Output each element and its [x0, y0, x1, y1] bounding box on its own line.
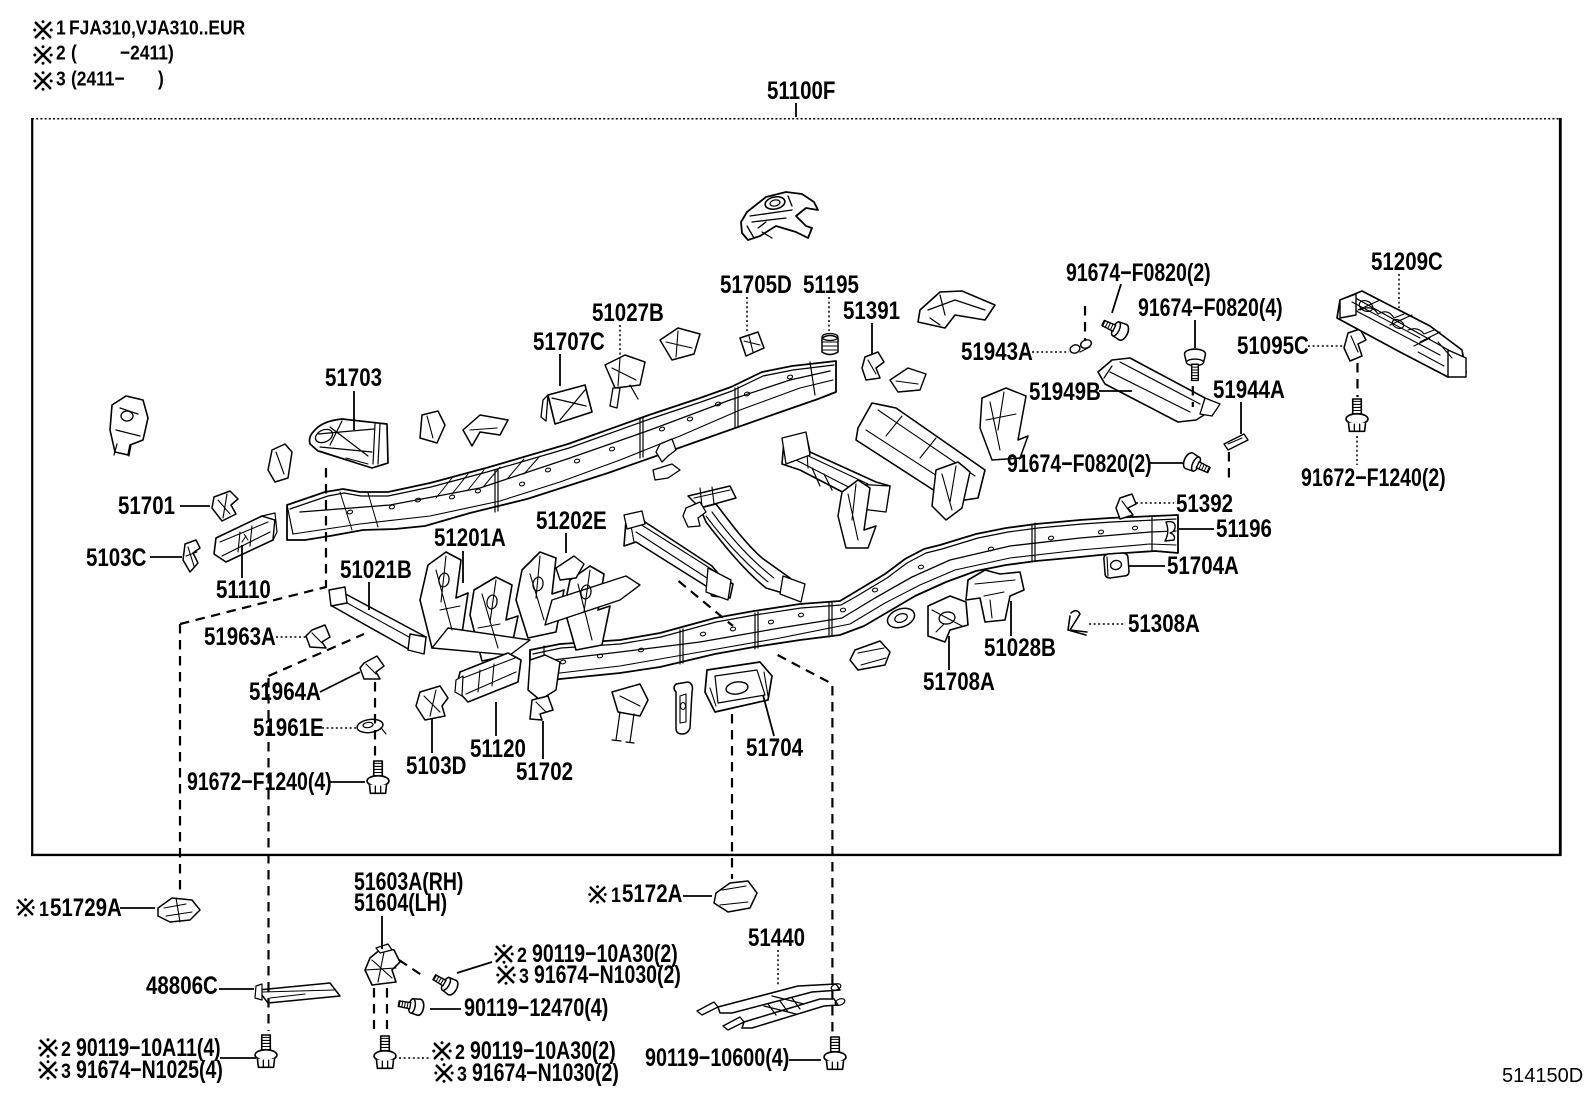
svg-text:91674−N1030(2): 91674−N1030(2) [472, 1059, 619, 1087]
svg-text:51021B: 51021B [340, 555, 412, 583]
svg-text:1: 1 [611, 884, 621, 908]
svg-text:(: ( [71, 42, 77, 65]
svg-text:51708A: 51708A [923, 667, 995, 695]
svg-text:): ) [158, 68, 164, 91]
svg-text:51729A: 51729A [50, 893, 122, 921]
svg-text:5172A: 5172A [622, 879, 682, 907]
svg-text:51110: 51110 [216, 575, 271, 603]
svg-text:1: 1 [56, 17, 66, 40]
svg-text:514150D: 514150D [1502, 1065, 1583, 1087]
svg-text:91674−F0820(2): 91674−F0820(2) [1007, 450, 1152, 478]
svg-text:51209C: 51209C [1371, 247, 1443, 275]
svg-text:48806C: 48806C [146, 971, 218, 999]
svg-text:3: 3 [61, 1060, 71, 1084]
svg-text:91672−F1240(4): 91672−F1240(4) [187, 768, 332, 796]
svg-text:51702: 51702 [516, 757, 573, 785]
svg-text:51440: 51440 [748, 923, 805, 951]
svg-text:51202E: 51202E [536, 506, 607, 534]
svg-text:51195: 51195 [803, 270, 859, 298]
svg-text:51028B: 51028B [984, 633, 1056, 661]
svg-text:51704A: 51704A [1167, 551, 1239, 579]
svg-text:51964A: 51964A [249, 677, 321, 705]
svg-text:FJA310,VJA310..EUR: FJA310,VJA310..EUR [69, 17, 245, 40]
svg-text:91674−F0820(2): 91674−F0820(2) [1066, 259, 1211, 287]
svg-text:2: 2 [455, 1041, 465, 1065]
svg-text:(2411−: (2411− [71, 68, 125, 91]
svg-text:91674−N1025(4): 91674−N1025(4) [76, 1056, 223, 1084]
svg-text:2: 2 [56, 42, 66, 65]
svg-text:51201A: 51201A [434, 523, 506, 551]
svg-text:51308A: 51308A [1128, 609, 1200, 637]
svg-text:91674−N1030(2): 91674−N1030(2) [534, 961, 681, 989]
svg-text:51963A: 51963A [204, 622, 276, 650]
svg-text:51961E: 51961E [253, 713, 324, 741]
svg-text:5103D: 5103D [406, 751, 466, 779]
svg-text:51701: 51701 [118, 491, 175, 519]
svg-text:51703: 51703 [325, 363, 382, 391]
svg-text:5103C: 5103C [86, 543, 146, 571]
svg-text:1: 1 [39, 898, 49, 922]
svg-text:3: 3 [519, 965, 529, 989]
svg-text:91672−F1240(2): 91672−F1240(2) [1301, 464, 1446, 492]
svg-text:51705D: 51705D [720, 270, 792, 298]
svg-text:91674−F0820(4): 91674−F0820(4) [1138, 294, 1283, 322]
svg-text:−2411): −2411) [120, 42, 174, 65]
svg-text:3: 3 [56, 68, 66, 91]
svg-text:51943A: 51943A [961, 337, 1033, 365]
svg-text:51707C: 51707C [533, 327, 605, 355]
svg-text:51196: 51196 [1216, 514, 1272, 542]
svg-text:3: 3 [457, 1063, 467, 1087]
svg-text:51704: 51704 [746, 733, 803, 761]
svg-text:51100F: 51100F [767, 76, 835, 104]
svg-text:90119−12470(4): 90119−12470(4) [464, 994, 608, 1022]
svg-text:51027B: 51027B [592, 298, 664, 326]
svg-text:2: 2 [61, 1038, 71, 1062]
svg-text:51391: 51391 [843, 296, 900, 324]
svg-text:90119−10600(4): 90119−10600(4) [645, 1044, 789, 1072]
svg-text:51949B: 51949B [1029, 377, 1101, 405]
svg-text:51604(LH): 51604(LH) [354, 889, 447, 917]
svg-text:51944A: 51944A [1213, 375, 1285, 403]
svg-text:51095C: 51095C [1237, 331, 1309, 359]
